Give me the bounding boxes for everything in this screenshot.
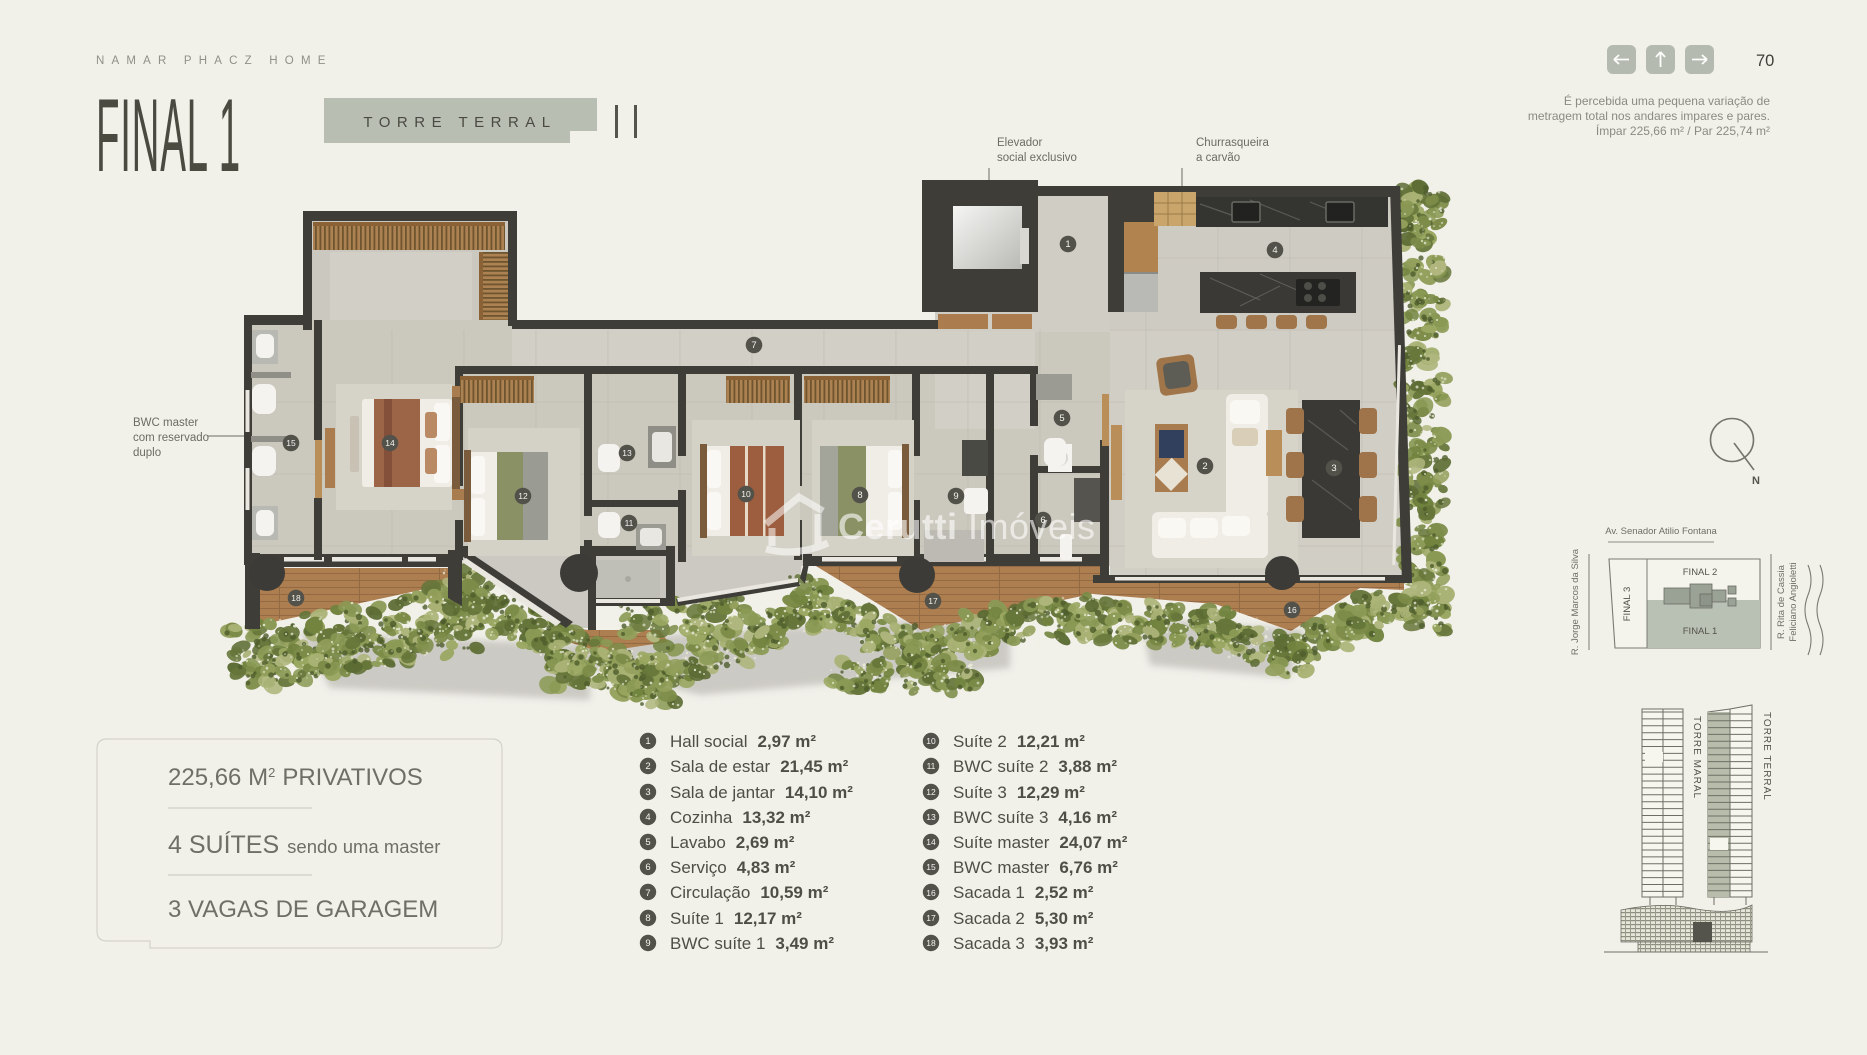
svg-text:Sala de jantar14,10 m²: Sala de jantar14,10 m²	[670, 783, 853, 802]
svg-text:15: 15	[926, 862, 936, 872]
svg-text:Churrasqueira: Churrasqueira	[1196, 137, 1269, 149]
svg-text:BWC master: BWC master	[133, 417, 198, 429]
svg-text:FINAL 2: FINAL 2	[1683, 567, 1718, 578]
svg-text:FINAL 3: FINAL 3	[1622, 587, 1633, 622]
svg-text:metragem total nos andares imp: metragem total nos andares impares e par…	[1528, 109, 1770, 123]
svg-text:Suíte 112,17 m²: Suíte 112,17 m²	[670, 909, 802, 928]
svg-text:social exclusivo: social exclusivo	[997, 152, 1077, 164]
svg-text:4: 4	[645, 812, 650, 823]
svg-text:3: 3	[645, 787, 650, 798]
svg-text:TORRE MARAL: TORRE MARAL	[1691, 716, 1702, 799]
svg-text:3 VAGAS DE GARAGEM: 3 VAGAS DE GARAGEM	[168, 896, 438, 923]
svg-text:14: 14	[926, 837, 936, 847]
svg-text:7: 7	[751, 340, 756, 351]
svg-text:Cerutti Imóveis: Cerutti Imóveis	[838, 506, 1096, 547]
svg-text:4: 4	[1272, 245, 1277, 256]
svg-text:1: 1	[1065, 239, 1070, 250]
svg-text:10: 10	[926, 736, 936, 746]
svg-text:7: 7	[645, 888, 650, 899]
svg-text:Sacada 25,30 m²: Sacada 25,30 m²	[953, 909, 1094, 928]
svg-text:2: 2	[645, 761, 650, 772]
svg-text:Elevador: Elevador	[997, 137, 1043, 149]
svg-text:1: 1	[645, 736, 650, 747]
svg-text:BWC suíte 23,88 m²: BWC suíte 23,88 m²	[953, 757, 1117, 776]
svg-text:5: 5	[1059, 413, 1064, 424]
svg-text:16: 16	[926, 888, 936, 898]
svg-text:Hall social2,97 m²: Hall social2,97 m²	[670, 732, 816, 751]
svg-text:6: 6	[645, 862, 650, 873]
svg-text:N: N	[1752, 475, 1760, 487]
svg-text:10: 10	[741, 489, 751, 499]
svg-text:Sala de estar21,45 m²: Sala de estar21,45 m²	[670, 757, 849, 776]
svg-text:17: 17	[928, 596, 938, 606]
svg-text:17: 17	[926, 913, 936, 923]
svg-text:12: 12	[926, 787, 936, 797]
svg-text:Feliciano Angioletti: Feliciano Angioletti	[1788, 562, 1799, 641]
svg-text:FINAL 1: FINAL 1	[96, 77, 241, 194]
svg-text:15: 15	[286, 438, 296, 448]
svg-text:2: 2	[1202, 461, 1207, 472]
svg-text:Sacada 33,93 m²: Sacada 33,93 m²	[953, 934, 1094, 953]
svg-text:Ímpar 225,66 m² / Par 225,74: Ímpar 225,66 m² / Par 225,74 m²	[1596, 123, 1770, 138]
svg-text:duplo: duplo	[133, 447, 161, 459]
svg-text:Suíte 212,21 m²: Suíte 212,21 m²	[953, 732, 1085, 751]
svg-text:a carvão: a carvão	[1196, 152, 1240, 164]
svg-text:TORRE TERRAL: TORRE TERRAL	[363, 114, 556, 131]
svg-text:18: 18	[926, 938, 936, 948]
svg-text:R. Rita de Cassia: R. Rita de Cassia	[1776, 564, 1787, 639]
svg-text:13: 13	[926, 812, 936, 822]
svg-text:12: 12	[518, 491, 528, 501]
svg-text:16: 16	[1287, 605, 1297, 615]
svg-text:Suíte 312,29 m²: Suíte 312,29 m²	[953, 783, 1085, 802]
svg-text:9: 9	[645, 938, 650, 949]
svg-text:9: 9	[953, 491, 958, 502]
svg-text:Sacada 12,52 m²: Sacada 12,52 m²	[953, 883, 1094, 902]
svg-text:Suíte master24,07 m²: Suíte master24,07 m²	[953, 833, 1128, 852]
svg-text:BWC suíte 13,49 m²: BWC suíte 13,49 m²	[670, 934, 834, 953]
svg-text:Circulação10,59 m²: Circulação10,59 m²	[670, 883, 829, 902]
svg-text:com reservado: com reservado	[133, 432, 209, 444]
svg-text:70: 70	[1756, 52, 1774, 70]
svg-text:18: 18	[291, 593, 301, 603]
svg-text:13: 13	[622, 448, 632, 458]
svg-text:5: 5	[645, 837, 650, 848]
svg-text:11: 11	[625, 518, 634, 528]
svg-text:14: 14	[385, 438, 395, 448]
svg-text:NAMAR PHACZ HOME: NAMAR PHACZ HOME	[96, 55, 333, 67]
svg-text:BWC master6,76 m²: BWC master6,76 m²	[953, 858, 1118, 877]
svg-text:FINAL 1: FINAL 1	[1683, 626, 1718, 637]
svg-text:Av. Senador Atilio Fontana: Av. Senador Atilio Fontana	[1605, 526, 1717, 537]
svg-text:8: 8	[857, 490, 862, 501]
svg-text:R. Jorge Marcos da Silva: R. Jorge Marcos da Silva	[1570, 548, 1581, 655]
svg-text:TORRE TERRAL: TORRE TERRAL	[1761, 712, 1772, 801]
svg-text:11: 11	[927, 761, 936, 771]
svg-text:225,66 M2PRIVATIVOS: 225,66 M2PRIVATIVOS	[168, 764, 423, 791]
svg-text:8: 8	[645, 913, 650, 924]
svg-text:BWC suíte 34,16 m²: BWC suíte 34,16 m²	[953, 808, 1117, 827]
svg-text:3: 3	[1331, 463, 1336, 474]
svg-text:É percebida uma pequena variaç: É percebida uma pequena variação de	[1564, 93, 1770, 108]
